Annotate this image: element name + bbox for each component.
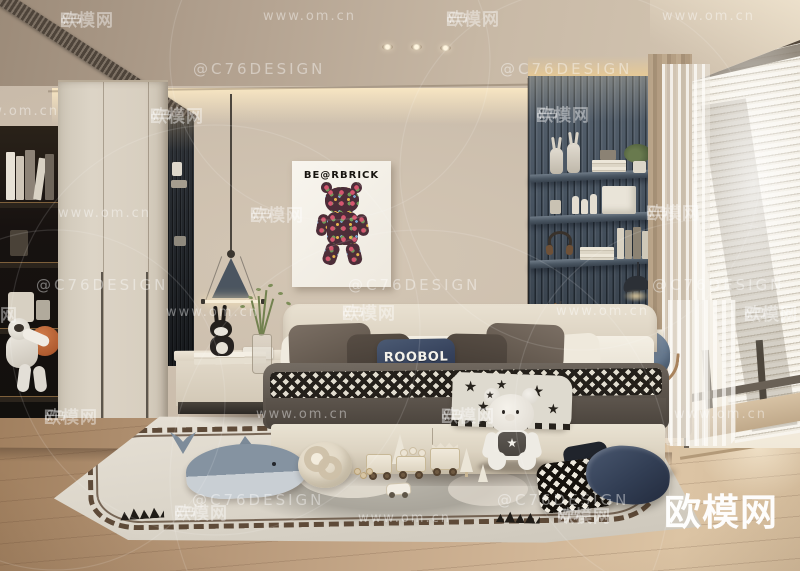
ceiling-spotlight bbox=[411, 44, 422, 50]
wardrobe bbox=[58, 80, 168, 462]
rabbit-face bbox=[214, 327, 228, 336]
light-bar-cap bbox=[201, 299, 205, 304]
column-decor bbox=[171, 180, 187, 188]
bedroom-photo: BE@RBRICK bbox=[0, 0, 800, 571]
knot-cushion bbox=[298, 442, 352, 488]
shelf-board bbox=[0, 202, 58, 208]
toy-train-car bbox=[396, 456, 426, 472]
astronaut-leg bbox=[32, 365, 47, 392]
plant-pot bbox=[633, 161, 646, 173]
column-decor bbox=[172, 162, 182, 176]
headphone-pad bbox=[565, 245, 573, 256]
bear-leg bbox=[518, 452, 536, 470]
train-wheel bbox=[399, 471, 407, 479]
poster-bear-leg bbox=[321, 241, 341, 266]
shelf-board bbox=[0, 262, 58, 268]
pendant-knob bbox=[227, 250, 235, 258]
bear-leg bbox=[488, 452, 506, 470]
bear-eye bbox=[516, 410, 519, 414]
ceiling-spotlight bbox=[382, 44, 393, 50]
left-bookshelf-niche bbox=[0, 126, 58, 464]
toy-train-car bbox=[430, 448, 460, 470]
wardrobe-seam bbox=[103, 82, 104, 462]
poster-title: BE@RBRICK bbox=[292, 170, 391, 181]
plant-leaf bbox=[240, 305, 245, 308]
train-wheel bbox=[415, 471, 423, 479]
poster-bear-leg bbox=[345, 242, 364, 267]
book-spine bbox=[6, 152, 15, 200]
book-stack bbox=[592, 160, 626, 172]
column-decor bbox=[174, 236, 186, 246]
astronaut-leg bbox=[16, 363, 31, 392]
bearbrick-poster: BE@RBRICK bbox=[292, 161, 391, 287]
bunny-figurine bbox=[567, 143, 580, 173]
book-upright bbox=[633, 227, 641, 259]
toy-tree-trunk bbox=[465, 472, 468, 477]
star-motif bbox=[464, 380, 476, 392]
knot-band bbox=[318, 456, 342, 480]
bear-plush bbox=[482, 386, 552, 472]
headphone-pad bbox=[545, 245, 553, 256]
pendant-cord bbox=[230, 94, 232, 252]
plant-leaf bbox=[256, 288, 261, 291]
rabbit-belly bbox=[216, 342, 228, 354]
sheer-curtain-lower bbox=[668, 300, 736, 446]
ceiling-spotlight bbox=[440, 45, 451, 51]
book-spine bbox=[45, 154, 54, 200]
toy-car-wheel bbox=[402, 492, 408, 498]
book-spine bbox=[16, 156, 24, 200]
toy-train-cargo bbox=[409, 447, 417, 455]
storage-box-shelf bbox=[602, 186, 636, 214]
bear-eye bbox=[502, 410, 505, 414]
poster-bear-body bbox=[327, 212, 358, 245]
book-upright bbox=[625, 230, 632, 259]
shelf-board bbox=[0, 396, 58, 402]
recessed-display-column bbox=[168, 116, 194, 366]
bottle-decor bbox=[590, 194, 597, 214]
pendant-cone-shade bbox=[212, 258, 250, 298]
wardrobe-seam bbox=[148, 82, 149, 462]
desk-lamp-glow bbox=[623, 290, 649, 302]
bottle-decor bbox=[581, 199, 588, 214]
whale-eye bbox=[272, 462, 276, 466]
bunny-figurine bbox=[550, 148, 563, 174]
plant-leaf bbox=[278, 292, 283, 295]
train-wheel bbox=[383, 472, 391, 480]
toy-log bbox=[366, 468, 373, 475]
panel-cove-glow bbox=[528, 56, 660, 78]
shelf-box bbox=[600, 150, 616, 160]
jar-decor bbox=[550, 200, 561, 214]
rabbit-figurine bbox=[202, 314, 242, 356]
shelf-decor bbox=[10, 230, 28, 256]
shelf-decor bbox=[36, 300, 50, 320]
toy-car-wheel bbox=[389, 492, 395, 498]
train-wheel bbox=[449, 468, 457, 476]
train-wheel bbox=[433, 468, 441, 476]
book-upright bbox=[617, 228, 624, 259]
book-stack bbox=[580, 247, 614, 260]
site-logo: 欧模网 bbox=[664, 482, 778, 536]
bear-muzzle bbox=[505, 414, 515, 421]
poster-bear-head bbox=[325, 187, 359, 214]
bottle-decor bbox=[572, 196, 579, 214]
